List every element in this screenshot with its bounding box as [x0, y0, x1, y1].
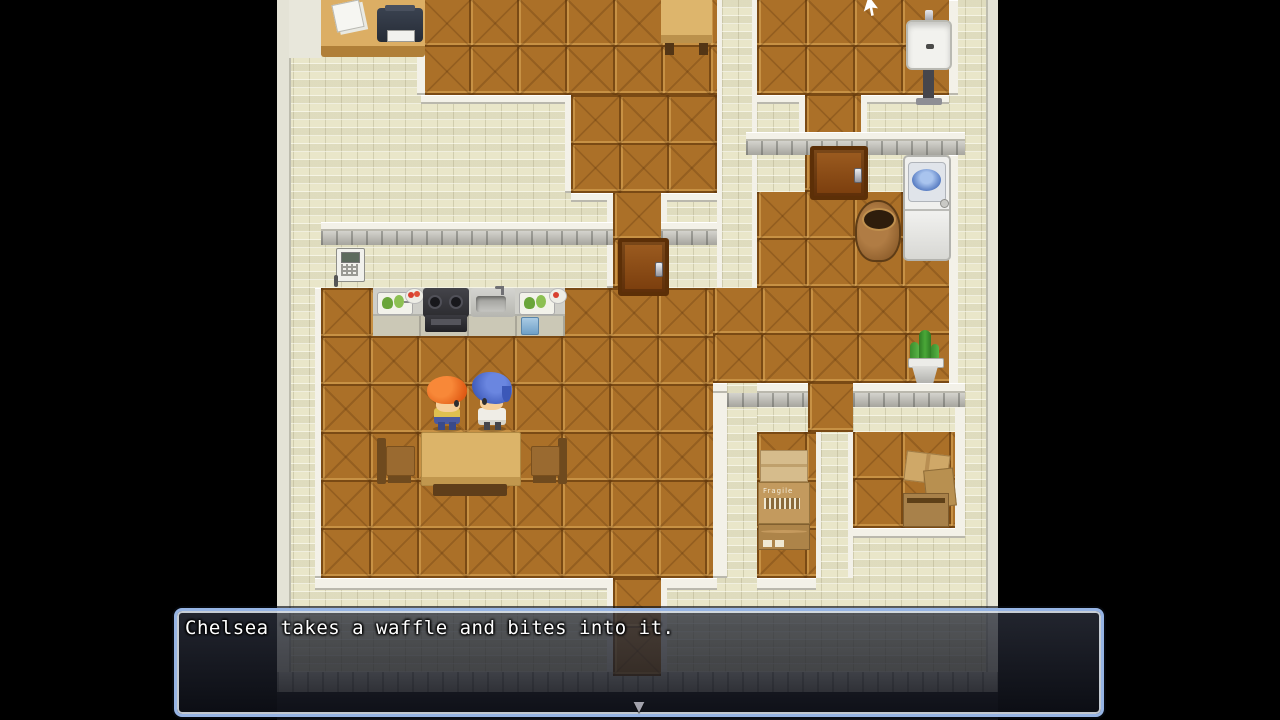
wall-edge	[757, 95, 805, 104]
door-handle-icon	[854, 168, 862, 183]
wall-edge	[853, 528, 965, 538]
continue-indicator-icon: ▼	[634, 701, 645, 713]
office-desk	[321, 0, 425, 57]
fragile-label: Fragile	[763, 487, 793, 495]
stove-icon	[423, 288, 469, 317]
wall-edge	[757, 578, 816, 590]
wall-cap-storage-b	[853, 393, 965, 407]
cardboard-boxes	[901, 453, 955, 528]
game-screen: Fragile Chelsea takes a waffle and bites…	[0, 0, 1280, 720]
outer-wall-left	[277, 0, 291, 692]
dialogue-window[interactable]: Chelsea takes a waffle and bites into it…	[174, 608, 1104, 717]
door-handle-icon	[655, 262, 663, 277]
glass-icon	[521, 317, 539, 335]
wall-edge	[667, 193, 717, 202]
wall-edge	[955, 395, 965, 538]
character-orange-hair	[427, 376, 467, 432]
outer-wall-right	[986, 0, 998, 692]
wall-edge	[565, 95, 571, 193]
tomato-plate-icon	[549, 288, 567, 304]
door-kitchen	[618, 238, 669, 296]
wall-cap-kitchen	[321, 231, 613, 245]
hair-icon	[427, 376, 467, 404]
wall-edge	[315, 578, 613, 590]
tomato-plate-icon	[405, 288, 424, 304]
door-laundry	[810, 146, 868, 200]
wall-edge	[713, 383, 727, 578]
kitchen-sink-icon	[471, 288, 515, 317]
cactus-plant	[903, 330, 947, 384]
cardboard-boxes-stack: Fragile	[758, 450, 810, 550]
chair-right	[531, 438, 567, 484]
bathroom-sink	[906, 10, 952, 114]
washing-machine	[903, 155, 951, 261]
dining-table-base	[433, 484, 507, 496]
wall-edge	[315, 288, 321, 578]
wall-edge	[421, 95, 571, 104]
wall-cap-kitchen-right	[661, 231, 717, 245]
oven-front-icon	[425, 315, 467, 332]
papers-icon	[331, 0, 364, 33]
wall-cap-storage-a	[727, 393, 808, 407]
wall-top	[661, 222, 717, 231]
wall-top	[746, 132, 965, 141]
wall-edge	[661, 578, 717, 590]
printer-icon	[377, 8, 423, 42]
wall-divider-storage-mid	[816, 432, 853, 578]
dining-table	[421, 432, 521, 486]
chair-left	[377, 438, 413, 484]
character-blue-hair	[472, 372, 512, 432]
wall-top	[321, 222, 613, 231]
barrel	[855, 200, 901, 262]
wood-floor-office-lower	[571, 95, 717, 193]
dialogue-text: Chelsea takes a waffle and bites into it…	[185, 617, 675, 639]
wall-phone	[336, 248, 365, 282]
outer-wall-corner	[289, 0, 321, 58]
kitchen-counter	[373, 288, 565, 336]
wall-edge	[853, 383, 965, 393]
hall-table	[661, 0, 712, 43]
wall-divider-storage-left	[727, 383, 757, 578]
wood-floor-corridor-storage	[808, 383, 853, 432]
